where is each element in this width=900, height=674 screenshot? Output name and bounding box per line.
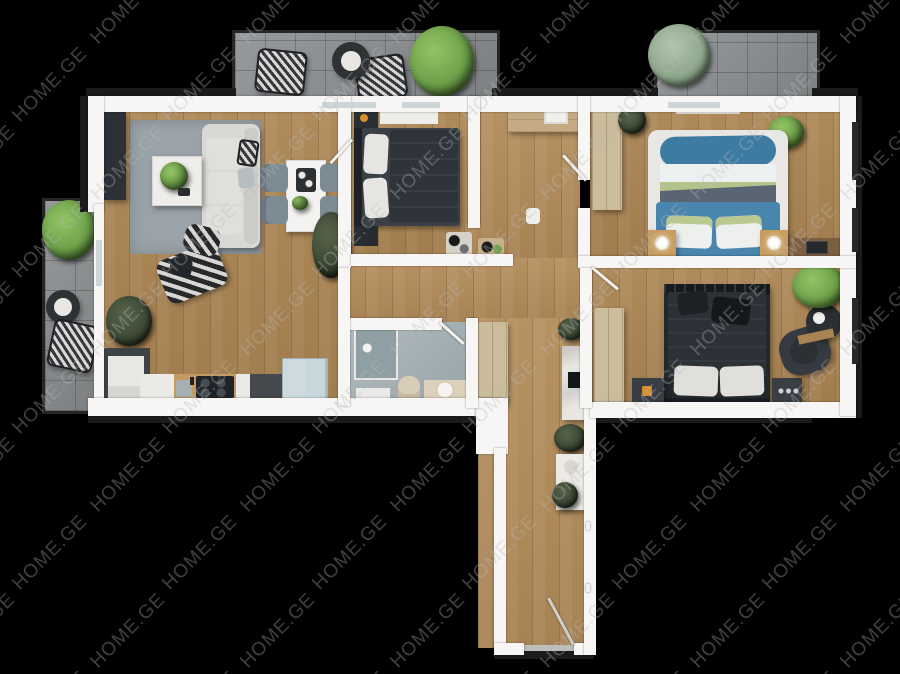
watermark-text: HOME.GE — [8, 667, 92, 674]
console-mirror — [564, 460, 578, 474]
floor-plan-image: HOME.GEHOME.GEHOME.GEHOME.GEHOME.GEHOME.… — [0, 0, 900, 674]
floor-plant — [792, 264, 846, 308]
table-lamp — [767, 236, 781, 250]
watermark-text: HOME.GE — [8, 511, 92, 595]
throw-pillow — [237, 167, 255, 189]
dining-centerpiece — [292, 196, 308, 210]
wall — [468, 96, 480, 228]
watermark-text: HOME.GE — [236, 433, 320, 517]
wall — [578, 96, 590, 180]
watermark-text: HOME.GE — [0, 121, 20, 205]
wall — [466, 318, 478, 408]
potted-plant — [648, 24, 710, 86]
bed-pillow — [715, 215, 763, 249]
watermark-text: HOME.GE — [608, 511, 692, 595]
bed-cushion — [711, 296, 752, 326]
nightstand — [772, 378, 802, 404]
wall-sconce-icon — [586, 522, 590, 530]
watermark-text: HOME.GE — [86, 433, 170, 517]
sofa-cushion — [206, 172, 242, 204]
wall — [584, 408, 596, 655]
balcony-table-tray — [341, 51, 361, 71]
throw-pillow — [236, 139, 259, 168]
bed-pillow — [363, 177, 390, 219]
balcony-door-glass — [322, 102, 376, 108]
wall — [476, 398, 508, 454]
window-frame — [852, 122, 858, 180]
pouf — [526, 208, 540, 224]
duvet — [390, 130, 458, 224]
kitchen-cabinet — [140, 374, 174, 400]
console-books — [544, 110, 568, 124]
balcony-chair — [46, 318, 101, 375]
kitchen-cabinet-dark — [250, 374, 282, 400]
watermark-text: HOME.GE — [236, 589, 320, 673]
mug — [813, 312, 825, 324]
wall — [494, 643, 524, 655]
laptop — [806, 241, 828, 254]
dining-chair — [262, 164, 288, 192]
hall-cabinet — [478, 322, 508, 404]
floor-plant — [552, 482, 578, 508]
coffee-table-plant — [160, 162, 188, 190]
dining-tray — [296, 168, 316, 192]
watermark-text: HOME.GE — [458, 667, 542, 674]
wall — [580, 268, 592, 408]
watermark-text: HOME.GE — [836, 0, 900, 49]
table-lamp — [655, 236, 669, 250]
window-frame — [852, 298, 858, 364]
washing-machine — [108, 356, 144, 400]
watermark-text: HOME.GE — [536, 0, 620, 49]
window-frame — [852, 208, 858, 252]
hallway-floor — [338, 258, 590, 322]
watermark-text: HOME.GE — [758, 667, 842, 674]
watermark-text: HOME.GE — [0, 433, 20, 517]
cooktop — [196, 376, 234, 398]
watermark-text: HOME.GE — [386, 433, 470, 517]
wall — [88, 96, 104, 212]
window-glass — [402, 102, 440, 108]
watermark-text: HOME.GE — [686, 589, 770, 673]
wall — [338, 268, 350, 406]
wall — [590, 402, 856, 418]
watermark-text: HOME.GE — [686, 433, 770, 517]
bed-bench — [354, 226, 378, 246]
wall — [348, 318, 442, 330]
watermark-text: HOME.GE — [158, 511, 242, 595]
watermark-text: HOME.GE — [0, 277, 20, 361]
wall — [578, 256, 856, 268]
wall — [578, 208, 590, 256]
wall — [94, 204, 104, 410]
balcony-door-glass — [668, 102, 720, 108]
wall — [351, 254, 513, 266]
watermark-text: HOME.GE — [158, 667, 242, 674]
watermark-text: HOME.GE — [86, 0, 170, 49]
shower — [354, 326, 398, 380]
balcony-chair — [254, 48, 308, 97]
coffee-table-tray — [178, 188, 190, 196]
wall — [494, 448, 506, 655]
bed-cushion — [677, 290, 710, 316]
headboard — [354, 128, 362, 226]
decor-accent — [642, 386, 652, 396]
floor-plant — [106, 296, 152, 346]
bed-pillow — [719, 365, 764, 397]
bed-bolster — [660, 135, 777, 167]
watermark-text: HOME.GE — [836, 589, 900, 673]
watermark-text: HOME.GE — [608, 667, 692, 674]
wardrobe — [594, 308, 624, 406]
tray-stool — [446, 232, 472, 256]
floor-plant — [554, 424, 586, 452]
watermark-text: HOME.GE — [0, 589, 20, 673]
watermark-text: HOME.GE — [836, 433, 900, 517]
watermark-text: HOME.GE — [308, 511, 392, 595]
lounger-pillow — [169, 256, 194, 278]
exterior-wall-face — [80, 96, 88, 212]
bed-pillow — [363, 133, 389, 174]
tv-console — [102, 112, 126, 200]
balcony-table-tray — [54, 298, 72, 316]
watermark-text: HOME.GE — [308, 667, 392, 674]
wall — [88, 398, 502, 416]
watermark-text: HOME.GE — [0, 0, 20, 49]
kitchen-cabinet — [236, 374, 250, 400]
potted-plant — [410, 26, 474, 96]
watermark-text: HOME.GE — [86, 589, 170, 673]
bed-pillow — [673, 365, 718, 397]
watermark-text: HOME.GE — [758, 511, 842, 595]
wall — [338, 96, 351, 268]
wall-sconce-icon — [586, 584, 590, 592]
faucet-icon — [190, 377, 194, 385]
watermark-text: HOME.GE — [386, 589, 470, 673]
dining-chair — [262, 196, 288, 224]
balcony-door-glass — [96, 240, 102, 286]
decor-accent — [360, 114, 368, 122]
sofa-cushion — [206, 138, 242, 170]
